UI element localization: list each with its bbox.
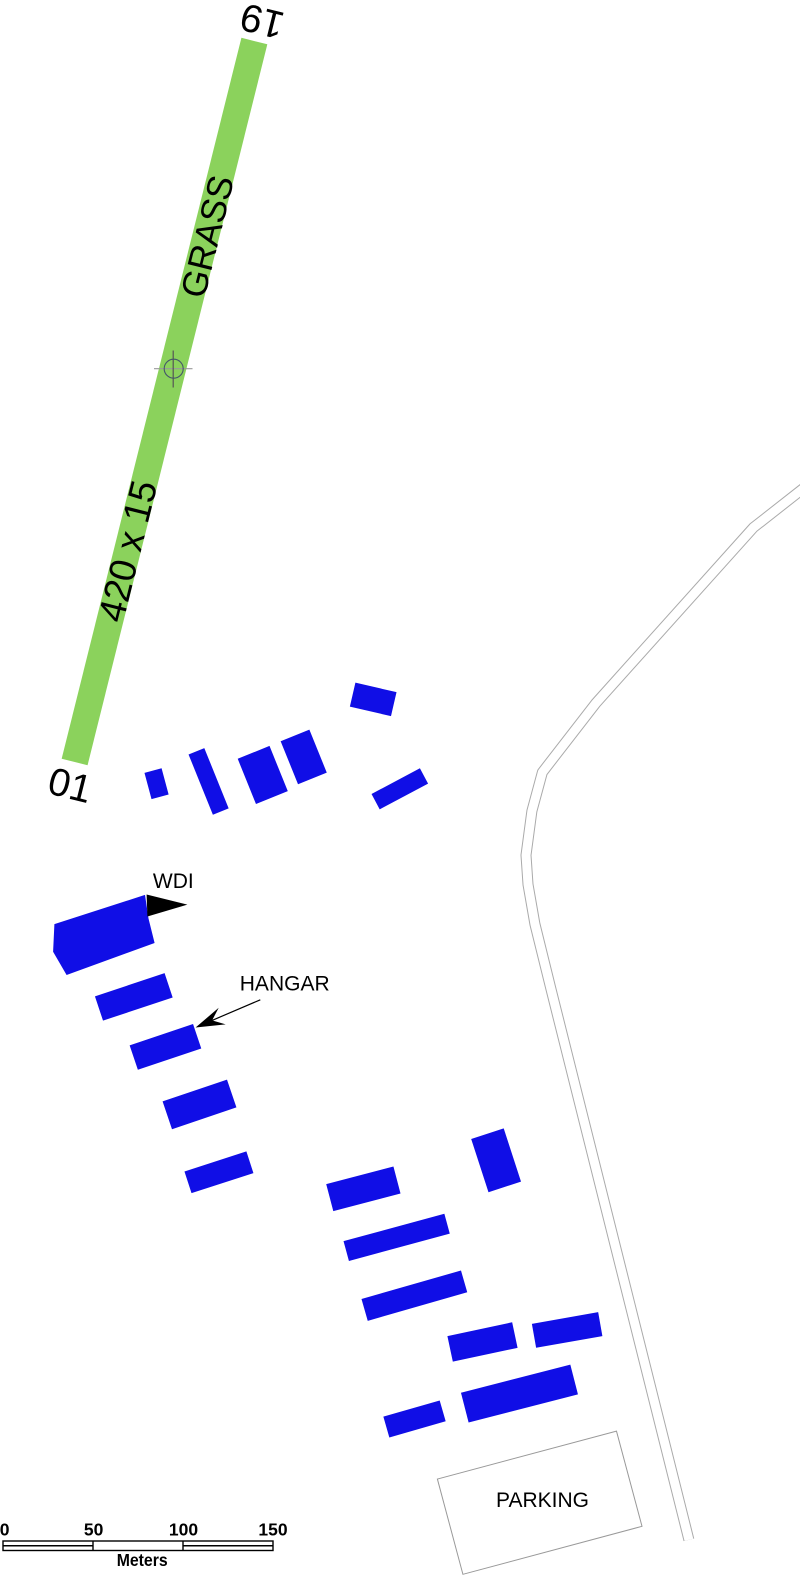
svg-text:150: 150	[258, 1520, 287, 1540]
svg-text:50: 50	[84, 1520, 104, 1540]
svg-text:Meters: Meters	[117, 1550, 168, 1570]
svg-text:HANGAR: HANGAR	[240, 973, 330, 996]
svg-text:0: 0	[0, 1520, 10, 1540]
svg-text:PARKING: PARKING	[496, 1489, 589, 1512]
svg-text:WDI: WDI	[153, 870, 194, 893]
svg-text:100: 100	[169, 1520, 198, 1540]
